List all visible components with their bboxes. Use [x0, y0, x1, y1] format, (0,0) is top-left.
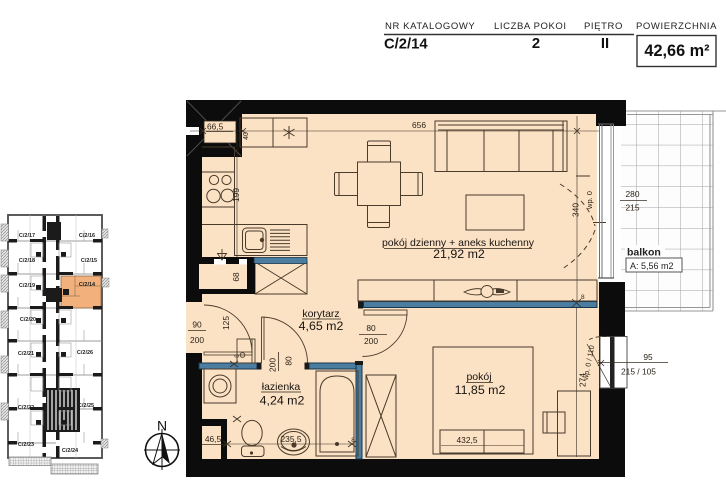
svg-text:C/2/23: C/2/23 — [18, 442, 34, 448]
svg-text:LICZBA POKOI: LICZBA POKOI — [494, 21, 567, 32]
svg-text:90: 90 — [192, 320, 202, 330]
svg-text:42,66 m²: 42,66 m² — [644, 42, 710, 60]
svg-text:40: 40 — [243, 132, 250, 140]
svg-text:II: II — [601, 36, 609, 52]
svg-text:200: 200 — [190, 335, 204, 345]
svg-text:C/2/26: C/2/26 — [77, 350, 93, 356]
svg-text:2: 2 — [532, 36, 540, 52]
svg-text:200: 200 — [364, 336, 378, 346]
svg-text:68: 68 — [231, 272, 241, 282]
svg-text:340: 340 — [571, 203, 581, 217]
svg-text:215 / 105: 215 / 105 — [621, 367, 656, 377]
svg-text:11,85 m2: 11,85 m2 — [455, 383, 506, 397]
svg-text:A: 5,56 m2: A: 5,56 m2 — [630, 261, 674, 271]
svg-text:C/2/19: C/2/19 — [19, 283, 35, 289]
svg-text:C/2/24: C/2/24 — [62, 448, 79, 454]
svg-text:C/2/22: C/2/22 — [18, 405, 34, 411]
svg-text:656: 656 — [412, 120, 426, 130]
svg-text:C/2/18: C/2/18 — [19, 258, 35, 264]
svg-text:200: 200 — [268, 358, 278, 372]
svg-text:C/2/20: C/2/20 — [20, 317, 36, 323]
svg-text:NR KATALOGOWY: NR KATALOGOWY — [385, 21, 475, 32]
svg-text:C/2/15: C/2/15 — [81, 258, 97, 264]
svg-text:235,5: 235,5 — [281, 434, 302, 444]
svg-text:8: 8 — [581, 294, 585, 301]
svg-text:46,5: 46,5 — [205, 434, 222, 444]
svg-text:66,5: 66,5 — [207, 122, 224, 132]
svg-text:łazienka: łazienka — [262, 381, 301, 393]
svg-text:95: 95 — [643, 352, 653, 362]
svg-text:199: 199 — [231, 188, 241, 202]
svg-text:215: 215 — [626, 203, 640, 213]
svg-text:21,92 m2: 21,92 m2 — [433, 247, 485, 261]
svg-text:C/2/25: C/2/25 — [78, 403, 94, 409]
svg-text:80: 80 — [284, 356, 294, 366]
svg-text:80: 80 — [366, 323, 376, 333]
svg-text:125: 125 — [221, 316, 231, 330]
svg-text:C/2/21: C/2/21 — [18, 351, 34, 357]
svg-text:C/2/16: C/2/16 — [79, 233, 95, 239]
svg-text:280: 280 — [626, 189, 640, 199]
svg-text:pokój: pokój — [466, 371, 491, 383]
svg-text:wp. 0: wp. 0 — [585, 191, 594, 210]
svg-text:4,65 m2: 4,65 m2 — [299, 319, 344, 333]
svg-text:N: N — [157, 418, 167, 434]
svg-text:balkon: balkon — [627, 247, 661, 259]
svg-text:PIĘTRO: PIĘTRO — [584, 21, 623, 32]
svg-text:POWIERZCHNIA: POWIERZCHNIA — [636, 21, 717, 32]
svg-text:C/2/17: C/2/17 — [19, 233, 35, 239]
svg-text:432,5: 432,5 — [457, 435, 478, 445]
svg-text:C/2/14: C/2/14 — [384, 37, 428, 53]
svg-text:C/2/14: C/2/14 — [79, 282, 96, 288]
svg-text:4,24 m2: 4,24 m2 — [260, 394, 305, 408]
